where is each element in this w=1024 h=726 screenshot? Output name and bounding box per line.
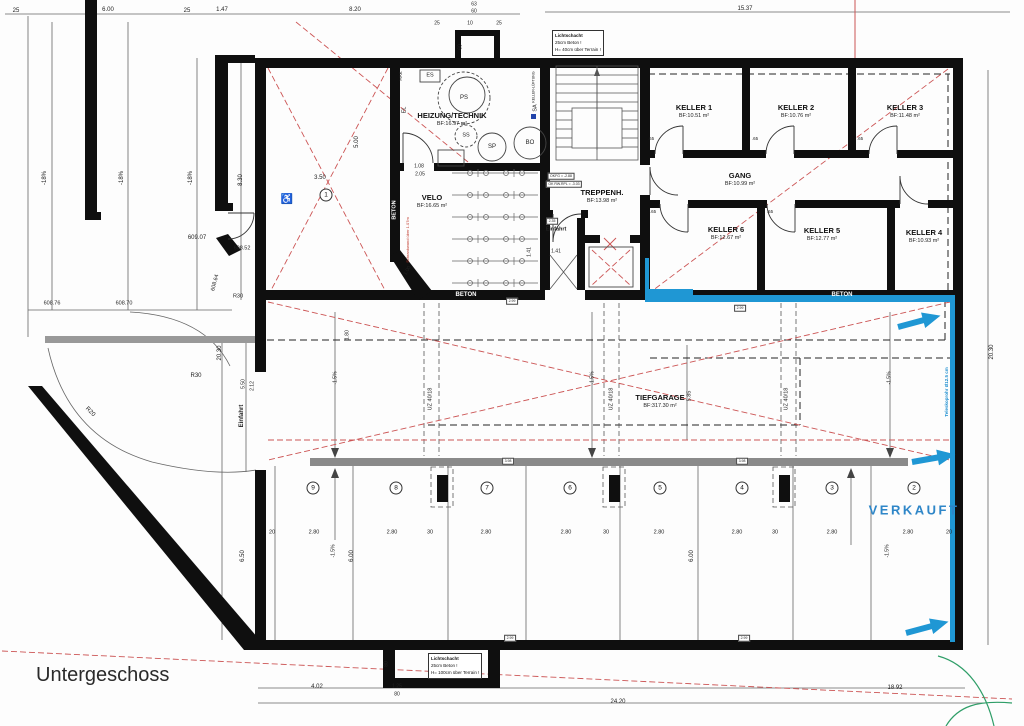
staircase [556,66,638,160]
floorplan-canvas: 256.00251.478.2015.37636025102560-18%-18… [0,0,1024,726]
drive-arrow-icon [904,614,951,641]
terrain-curves [938,656,1012,726]
note-line: Lichtschacht [555,32,601,39]
stair-arrowhead [594,68,600,76]
blue-markings [645,258,957,642]
dashed-lines [267,74,950,425]
note-line: 25cm Beton ! [555,39,601,46]
drive-arrow-icon [911,446,957,469]
lichtschacht-note-bottom: Lichtschacht 25cm Beton ! H= 100cm über … [428,653,482,679]
plan-title: Untergeschoss [36,664,169,687]
note-line: 25cm Beton ! [431,662,479,669]
floorplan-svg [0,0,1024,726]
drive-arrow-icon [896,308,943,335]
equipment [420,70,546,166]
ramp-cross [550,255,577,289]
lichtschacht-note-top: Lichtschacht 25cm Beton ! H= 40cm über T… [552,30,604,56]
marker-dot [531,114,536,119]
note-line: H= 40cm über Terrain ! [555,46,601,53]
gray-beams [45,336,908,466]
walls [28,0,963,688]
note-line: Lichtschacht [431,655,479,662]
red-dash-lines [2,22,1012,699]
note-line: H= 100cm über Terrain ! [431,669,479,676]
bike-racks [452,169,538,287]
